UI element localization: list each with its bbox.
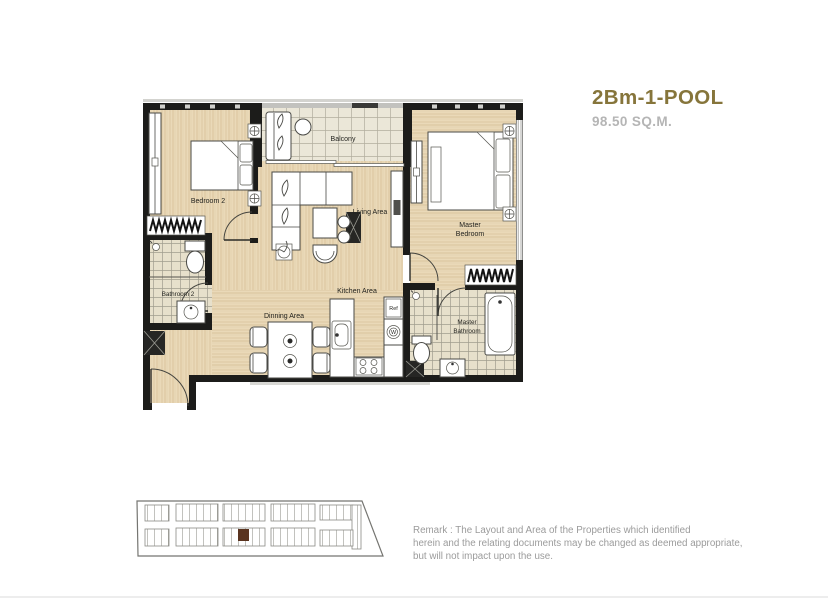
- label-fridge: Ref: [389, 306, 398, 312]
- stool: [338, 216, 350, 228]
- label-bathroom2: Bathroom 2: [162, 291, 195, 298]
- label-balcony: Balcony: [331, 136, 356, 143]
- remark-line2: herein and the relating documents may be…: [413, 537, 743, 550]
- label-master-bedroom-2: Bedroom: [456, 231, 485, 238]
- closet-zigzag: [147, 216, 205, 235]
- label-master-bedroom-1: Master: [459, 222, 481, 229]
- stove: [356, 358, 382, 375]
- coffee-table: [313, 208, 337, 238]
- key-plan: [128, 497, 396, 565]
- remark: Remark : The Layout and Area of the Prop…: [413, 524, 743, 564]
- lounge-chair: [266, 112, 291, 160]
- remark-line1: Remark : The Layout and Area of the Prop…: [413, 524, 743, 537]
- dining-table: [268, 322, 312, 378]
- unit-name: 2Bm-1-POOL: [592, 86, 724, 110]
- bed: [191, 141, 253, 190]
- label-master-bathroom-2: Bathroom: [453, 328, 480, 335]
- closet-zigzag: [465, 265, 516, 285]
- stool: [338, 231, 350, 243]
- master-window: [517, 120, 523, 260]
- bed: [428, 132, 513, 210]
- basin: [177, 301, 205, 323]
- label-dining: Dinning Area: [264, 313, 304, 320]
- title-block: 2Bm-1-POOL 98.50 SQ.M.: [592, 86, 724, 129]
- shaft-bathroom2: [144, 331, 165, 355]
- key-plan-unit-highlight: [238, 529, 249, 541]
- basin: [440, 359, 465, 377]
- unit-area: 98.50 SQ.M.: [592, 114, 724, 129]
- wardrobe: [411, 141, 422, 203]
- wardrobe: [149, 113, 161, 214]
- toilet: [185, 241, 205, 273]
- label-bedroom2: Bedroom 2: [191, 198, 225, 205]
- label-kitchen: Kitchen Area: [337, 288, 377, 295]
- page: 2Bm-1-POOL 98.50 SQ.M.: [0, 0, 828, 599]
- floor-plan: Bedroom 2 Balcony Living Area Master Bed…: [130, 95, 530, 415]
- plant-table: [276, 241, 292, 260]
- label-living: Living Area: [353, 209, 388, 216]
- balcony-table: [295, 119, 311, 135]
- bottom-rule: [0, 596, 828, 598]
- remark-line3: but will not impact upon the use.: [413, 550, 743, 563]
- toilet: [412, 336, 431, 364]
- kitchen-sink: [332, 321, 351, 349]
- label-master-bathroom-1: Master: [457, 319, 476, 326]
- bathtub: [485, 293, 515, 355]
- balcony-railing: [262, 103, 403, 108]
- tv-console: [391, 171, 403, 247]
